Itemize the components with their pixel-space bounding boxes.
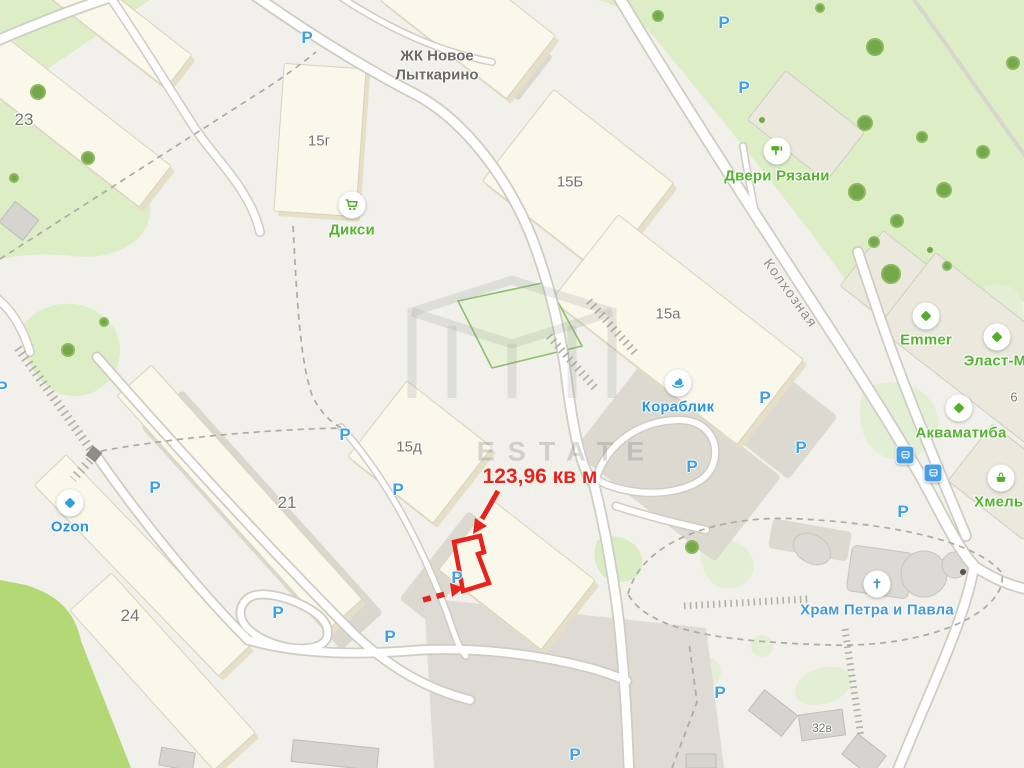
poi-label[interactable]: Ozon: [51, 519, 89, 536]
poi-label[interactable]: Двери Рязани: [724, 168, 829, 185]
parking-icon[interactable]: P: [718, 13, 729, 33]
building-label-15д: 15д: [396, 439, 421, 456]
bus-stop-icon[interactable]: [896, 446, 915, 465]
poi-label[interactable]: Акваматиба: [915, 425, 1006, 442]
diamond-icon[interactable]: [984, 324, 1011, 351]
complex-title: ЖК Новое Лыткарино: [395, 47, 478, 85]
parking-icon[interactable]: P: [384, 627, 395, 647]
building-label-6: 6: [1010, 390, 1017, 405]
poi-label[interactable]: Храм Петра и Павла: [800, 602, 954, 619]
map-canvas: [0, 0, 1024, 768]
parking-icon[interactable]: P: [759, 388, 770, 408]
area-annotation: 123,96 кв м: [483, 465, 598, 489]
building-label-23: 23: [15, 110, 34, 130]
poi-label[interactable]: Кораблик: [642, 399, 715, 416]
building-label-24: 24: [121, 606, 140, 626]
bus-stop-icon[interactable]: [924, 464, 943, 483]
roller-icon[interactable]: [764, 138, 791, 165]
horse-icon[interactable]: [665, 370, 692, 397]
poi-label[interactable]: Emmer: [900, 332, 952, 349]
parking-icon[interactable]: P: [0, 378, 8, 398]
poi-label[interactable]: Дикси: [329, 222, 375, 239]
parking-icon[interactable]: P: [149, 478, 160, 498]
parking-icon[interactable]: P: [714, 683, 725, 703]
diamond-icon[interactable]: [946, 395, 973, 422]
watermark-text: ESTATE: [477, 437, 658, 468]
parking-icon[interactable]: P: [686, 457, 697, 477]
diamond-icon[interactable]: [913, 303, 940, 330]
parking-icon[interactable]: P: [451, 568, 462, 588]
poi-label[interactable]: Эласт-М: [964, 353, 1024, 370]
parking-icon[interactable]: P: [272, 603, 283, 623]
poi-label[interactable]: Хмель Х: [974, 494, 1024, 511]
cross-icon[interactable]: [864, 571, 891, 598]
parking-icon[interactable]: P: [339, 425, 350, 445]
parking-icon[interactable]: P: [301, 28, 312, 48]
building-label-15а: 15а: [655, 306, 680, 323]
parking-icon[interactable]: P: [795, 438, 806, 458]
diamond-icon[interactable]: [57, 490, 84, 517]
parking-icon[interactable]: P: [569, 745, 580, 765]
basket-icon[interactable]: [988, 465, 1015, 492]
parking-icon[interactable]: P: [392, 480, 403, 500]
building-label-15г: 15г: [308, 133, 330, 150]
cart-icon[interactable]: [339, 192, 366, 219]
building-label-21: 21: [278, 493, 297, 513]
building-label-15Б: 15Б: [557, 174, 584, 191]
parking-icon[interactable]: P: [897, 502, 908, 522]
building-label-32в: 32в: [812, 721, 832, 735]
parking-icon[interactable]: P: [738, 78, 749, 98]
map-viewport: ЖК Новое Лыткарино Колхозная 2315г15Б15а…: [0, 0, 1024, 768]
